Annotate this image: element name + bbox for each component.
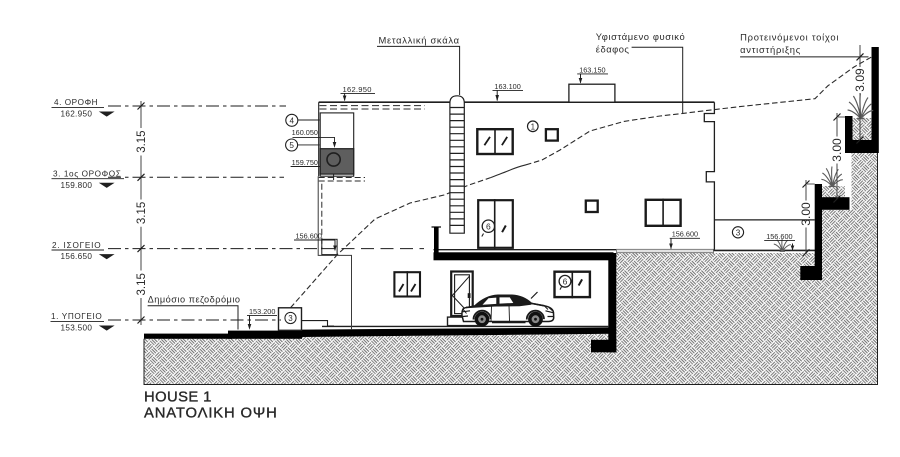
svg-text:Υφιστάμενο φυσικό: Υφιστάμενο φυσικό [596,31,686,42]
svg-text:4: 4 [290,116,295,125]
svg-text:6: 6 [563,276,568,286]
svg-text:156.600: 156.600 [296,231,322,240]
svg-text:3.15: 3.15 [136,273,148,295]
svg-text:έδαφος: έδαφος [596,44,630,55]
svg-text:156.600: 156.600 [672,230,698,239]
svg-text:ΑΝΑΤΟΛΙΚΗ ΟΨΗ: ΑΝΑΤΟΛΙΚΗ ΟΨΗ [144,406,278,422]
svg-text:160.050: 160.050 [292,128,318,137]
svg-text:3.15: 3.15 [136,130,148,152]
svg-text:163.150: 163.150 [579,65,605,74]
svg-text:3: 3 [736,228,741,237]
svg-text:3.15: 3.15 [136,202,148,224]
svg-text:αντιστήριξης: αντιστήριξης [740,44,801,55]
svg-text:HOUSE 1: HOUSE 1 [144,390,212,406]
svg-text:6: 6 [486,221,491,231]
svg-text:1. ΥΠΟΓΕΙΟ: 1. ΥΠΟΓΕΙΟ [51,312,102,321]
svg-text:Προτεινόμενοι τοίχοι: Προτεινόμενοι τοίχοι [740,31,839,42]
svg-text:156.650: 156.650 [61,252,93,261]
svg-text:156.600: 156.600 [766,232,792,241]
svg-text:3.00: 3.00 [799,202,813,226]
svg-text:5: 5 [289,141,294,150]
svg-text:3.00: 3.00 [830,138,844,162]
svg-text:163.100: 163.100 [494,82,520,91]
svg-text:3.09: 3.09 [853,68,867,92]
svg-text:159.800: 159.800 [61,181,93,190]
svg-text:162.950: 162.950 [343,85,372,94]
svg-text:153.500: 153.500 [61,324,93,333]
svg-text:1: 1 [531,122,536,131]
svg-text:4. ΟΡΟΦΗ: 4. ΟΡΟΦΗ [54,98,98,107]
svg-text:153.200: 153.200 [249,307,275,316]
svg-text:Δημόσιο πεζοδρόμιο: Δημόσιο πεζοδρόμιο [148,295,241,305]
svg-text:Μεταλλική σκάλα: Μεταλλική σκάλα [379,35,460,46]
svg-text:3. 1ος ΟΡΟΦΟΣ: 3. 1ος ΟΡΟΦΟΣ [53,170,121,179]
svg-text:159.750: 159.750 [292,158,318,167]
svg-text:162.950: 162.950 [61,110,93,119]
svg-text:2. ΙΣΟΓΕΙΟ: 2. ΙΣΟΓΕΙΟ [52,241,101,250]
svg-text:3: 3 [288,314,293,323]
